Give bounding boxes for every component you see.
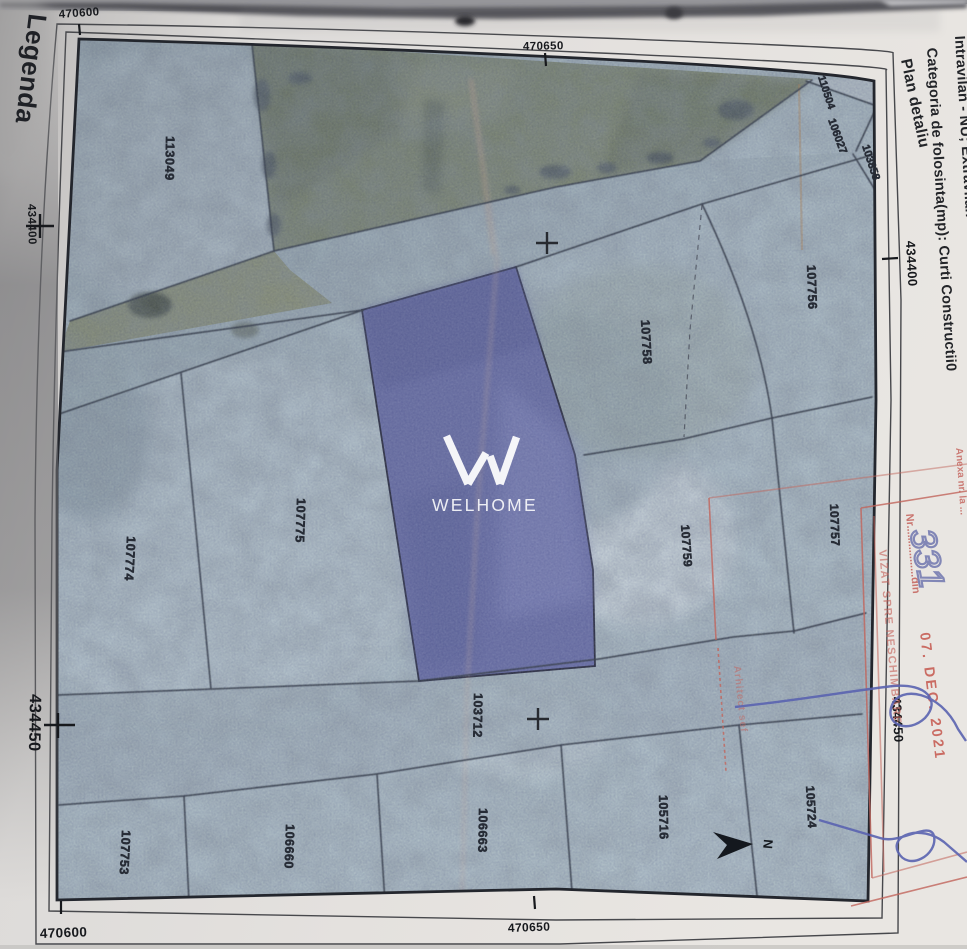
svg-text:107758: 107758 (638, 319, 654, 364)
svg-text:434400: 434400 (25, 204, 38, 245)
svg-text:434400: 434400 (903, 240, 920, 287)
svg-text:107753: 107753 (117, 830, 133, 875)
svg-text:107775: 107775 (292, 498, 308, 543)
svg-text:470600: 470600 (40, 924, 88, 941)
svg-text:107756: 107756 (804, 265, 820, 310)
svg-text:107757: 107757 (827, 504, 842, 547)
svg-text:107759: 107759 (678, 524, 695, 567)
svg-text:WELHOME: WELHOME (432, 495, 538, 515)
svg-text:N: N (760, 839, 776, 850)
svg-text:106660: 106660 (281, 824, 297, 869)
svg-text:470650: 470650 (508, 920, 551, 935)
svg-text:103712: 103712 (470, 693, 485, 738)
svg-text:107774: 107774 (122, 536, 138, 581)
svg-text:105716: 105716 (656, 795, 671, 840)
svg-text:470650: 470650 (523, 40, 564, 53)
svg-text:106663: 106663 (475, 808, 490, 853)
svg-text:105724: 105724 (803, 785, 819, 828)
svg-text:113049: 113049 (162, 136, 177, 181)
svg-text:434450: 434450 (25, 694, 44, 752)
